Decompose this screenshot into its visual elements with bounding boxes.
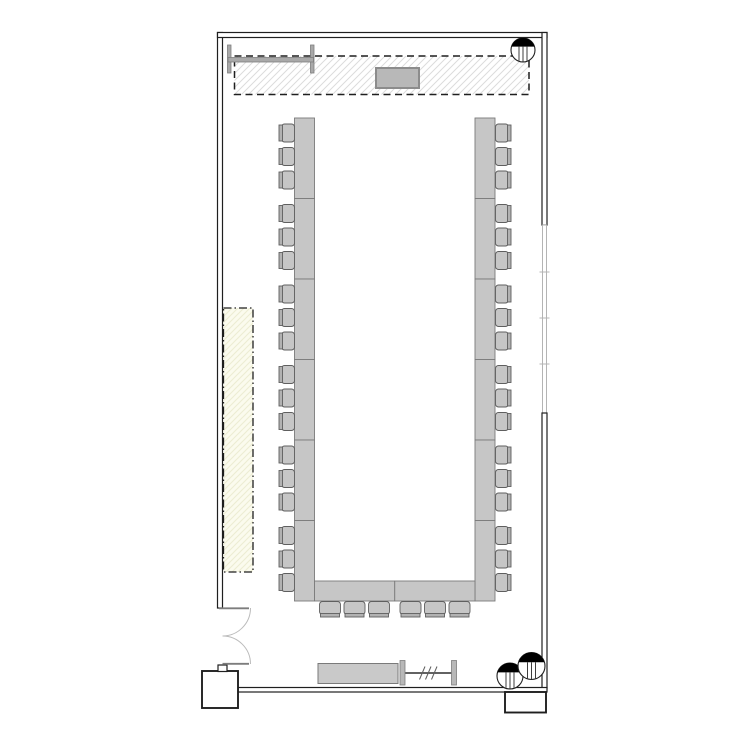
door-swing-arc-top: [223, 608, 251, 636]
chair-seat: [496, 205, 509, 223]
chair-back: [508, 367, 512, 383]
chair-seat: [496, 228, 509, 246]
chair-back: [279, 471, 283, 487]
pier-bottom-right: [505, 692, 546, 713]
chair: [496, 550, 512, 568]
chair-back: [279, 414, 283, 430]
chair-back: [508, 149, 512, 165]
chair-seat: [496, 470, 509, 488]
u-table-group: [295, 118, 496, 601]
chair-seat: [282, 446, 295, 464]
chair-seat: [449, 602, 470, 615]
chair: [279, 148, 295, 166]
service-area: [224, 308, 254, 572]
chair: [496, 171, 512, 189]
table-left-segment: [295, 199, 315, 280]
chair-seat: [282, 413, 295, 431]
table-left-segment: [295, 118, 315, 199]
chair-back: [508, 414, 512, 430]
double-door: [219, 608, 251, 664]
chair: [279, 446, 295, 464]
chair-back: [279, 551, 283, 567]
chair-seat: [282, 574, 295, 592]
column-marker-fill: [519, 652, 545, 662]
chair: [279, 550, 295, 568]
chair-back: [279, 528, 283, 544]
table-left-segment: [295, 279, 315, 360]
chair: [496, 389, 512, 407]
chair: [279, 171, 295, 189]
chair: [279, 205, 295, 223]
chair-back: [426, 614, 445, 618]
door-swing-arc-bottom: [223, 636, 251, 664]
floor-plan: [0, 0, 750, 750]
chair-seat: [496, 332, 509, 350]
table-right-segment: [475, 118, 495, 199]
chair-back: [508, 206, 512, 222]
chair-seat: [496, 285, 509, 303]
chair: [279, 574, 295, 592]
chair-back: [508, 471, 512, 487]
chair: [279, 124, 295, 142]
chair-back: [508, 229, 512, 245]
chair-back: [279, 575, 283, 591]
chair: [496, 574, 512, 592]
chair: [279, 493, 295, 511]
chair-seat: [496, 309, 509, 327]
chair: [344, 602, 365, 618]
chair-seat: [369, 602, 390, 615]
table-right-segment: [475, 521, 495, 602]
chair-back: [279, 447, 283, 463]
chair-seat: [425, 602, 446, 615]
chair-back: [508, 253, 512, 269]
chair: [279, 366, 295, 384]
chair-back: [508, 494, 512, 510]
chair-back: [279, 310, 283, 326]
chair-back: [508, 551, 512, 567]
wall-bottom: [238, 688, 547, 693]
chair-seat: [496, 148, 509, 166]
podium: [376, 68, 419, 88]
table-right-segment: [475, 199, 495, 280]
column-marker-fill: [511, 38, 534, 47]
chair: [496, 285, 512, 303]
chair-seat: [496, 252, 509, 270]
column-marker: [518, 652, 545, 679]
chair-seat: [496, 413, 509, 431]
screen-bar: [228, 58, 314, 63]
chair-seat: [282, 493, 295, 511]
chair: [279, 252, 295, 270]
chair-back: [508, 310, 512, 326]
chair-seat: [282, 366, 295, 384]
chair-back: [450, 614, 469, 618]
chair: [400, 602, 421, 618]
wall-top: [218, 33, 548, 38]
pier-bottom-left: [202, 671, 238, 708]
chair-back: [279, 494, 283, 510]
chair: [279, 309, 295, 327]
chair-seat: [282, 550, 295, 568]
chair-seat: [282, 205, 295, 223]
chair-back: [508, 333, 512, 349]
chair-back: [279, 390, 283, 406]
chair-back: [345, 614, 364, 618]
chair-back: [321, 614, 340, 618]
chair-seat: [496, 124, 509, 142]
chair-seat: [282, 252, 295, 270]
chair-seat: [496, 389, 509, 407]
chair: [496, 493, 512, 511]
chair: [279, 389, 295, 407]
wall-left: [218, 33, 223, 609]
chair: [496, 332, 512, 350]
chair-seat: [282, 148, 295, 166]
chair-seat: [282, 171, 295, 189]
chair-back: [508, 286, 512, 302]
chair-seat: [282, 389, 295, 407]
chair-back: [279, 149, 283, 165]
chair-back: [508, 528, 512, 544]
stage-zone: [228, 45, 530, 95]
chair-back: [401, 614, 420, 618]
chair-back: [370, 614, 389, 618]
chair: [496, 446, 512, 464]
chair-back: [279, 333, 283, 349]
credenza: [318, 664, 398, 684]
chair: [496, 527, 512, 545]
chair-back: [508, 575, 512, 591]
chair-back: [279, 172, 283, 188]
chair-back: [279, 253, 283, 269]
chair: [320, 602, 341, 618]
chair: [449, 602, 470, 618]
chair: [279, 332, 295, 350]
chair: [279, 413, 295, 431]
chair-seat: [496, 574, 509, 592]
chair-seat: [496, 366, 509, 384]
wall-right-upper: [542, 33, 547, 226]
chair-back: [508, 447, 512, 463]
chair-seat: [400, 602, 421, 615]
chair-back: [279, 367, 283, 383]
window-right: [543, 225, 547, 413]
chair: [279, 285, 295, 303]
chair-seat: [496, 171, 509, 189]
table-left-segment: [295, 440, 315, 521]
partition-post-right: [452, 661, 457, 686]
chair: [496, 205, 512, 223]
column-marker: [511, 38, 535, 62]
chair: [496, 413, 512, 431]
chair: [496, 366, 512, 384]
bottom-equipment: [318, 661, 457, 686]
wall-right-lower: [542, 413, 547, 688]
chair: [496, 228, 512, 246]
table-bottom-segment: [315, 581, 395, 601]
chair-back: [508, 125, 512, 141]
chair-seat: [496, 446, 509, 464]
chair-seat: [282, 285, 295, 303]
chair: [496, 252, 512, 270]
table-bottom-segment: [395, 581, 475, 601]
partition-rail-symbol: [400, 661, 457, 686]
chair-back: [508, 390, 512, 406]
floor-plan-svg: [0, 0, 750, 750]
chair-seat: [496, 493, 509, 511]
chair-seat: [282, 332, 295, 350]
table-right-segment: [475, 279, 495, 360]
table-right-segment: [475, 440, 495, 521]
chair-seat: [320, 602, 341, 615]
table-right-segment: [475, 360, 495, 441]
chair: [425, 602, 446, 618]
chair: [369, 602, 390, 618]
chair: [279, 470, 295, 488]
chair-back: [508, 172, 512, 188]
table-left-segment: [295, 521, 315, 602]
table-left-segment: [295, 360, 315, 441]
chair: [496, 148, 512, 166]
partition-post-left: [400, 661, 405, 686]
chair-seat: [282, 527, 295, 545]
chair: [279, 228, 295, 246]
chair-back: [279, 229, 283, 245]
chair-back: [279, 286, 283, 302]
chair-seat: [496, 550, 509, 568]
chair: [496, 470, 512, 488]
chair-back: [279, 125, 283, 141]
chair-seat: [282, 470, 295, 488]
chair: [496, 124, 512, 142]
chair-seat: [282, 309, 295, 327]
chair-back: [279, 206, 283, 222]
pier-notch: [218, 665, 227, 672]
chair-seat: [282, 228, 295, 246]
chair: [279, 527, 295, 545]
chair: [496, 309, 512, 327]
chair-seat: [282, 124, 295, 142]
chair-seat: [344, 602, 365, 615]
chair-seat: [496, 527, 509, 545]
